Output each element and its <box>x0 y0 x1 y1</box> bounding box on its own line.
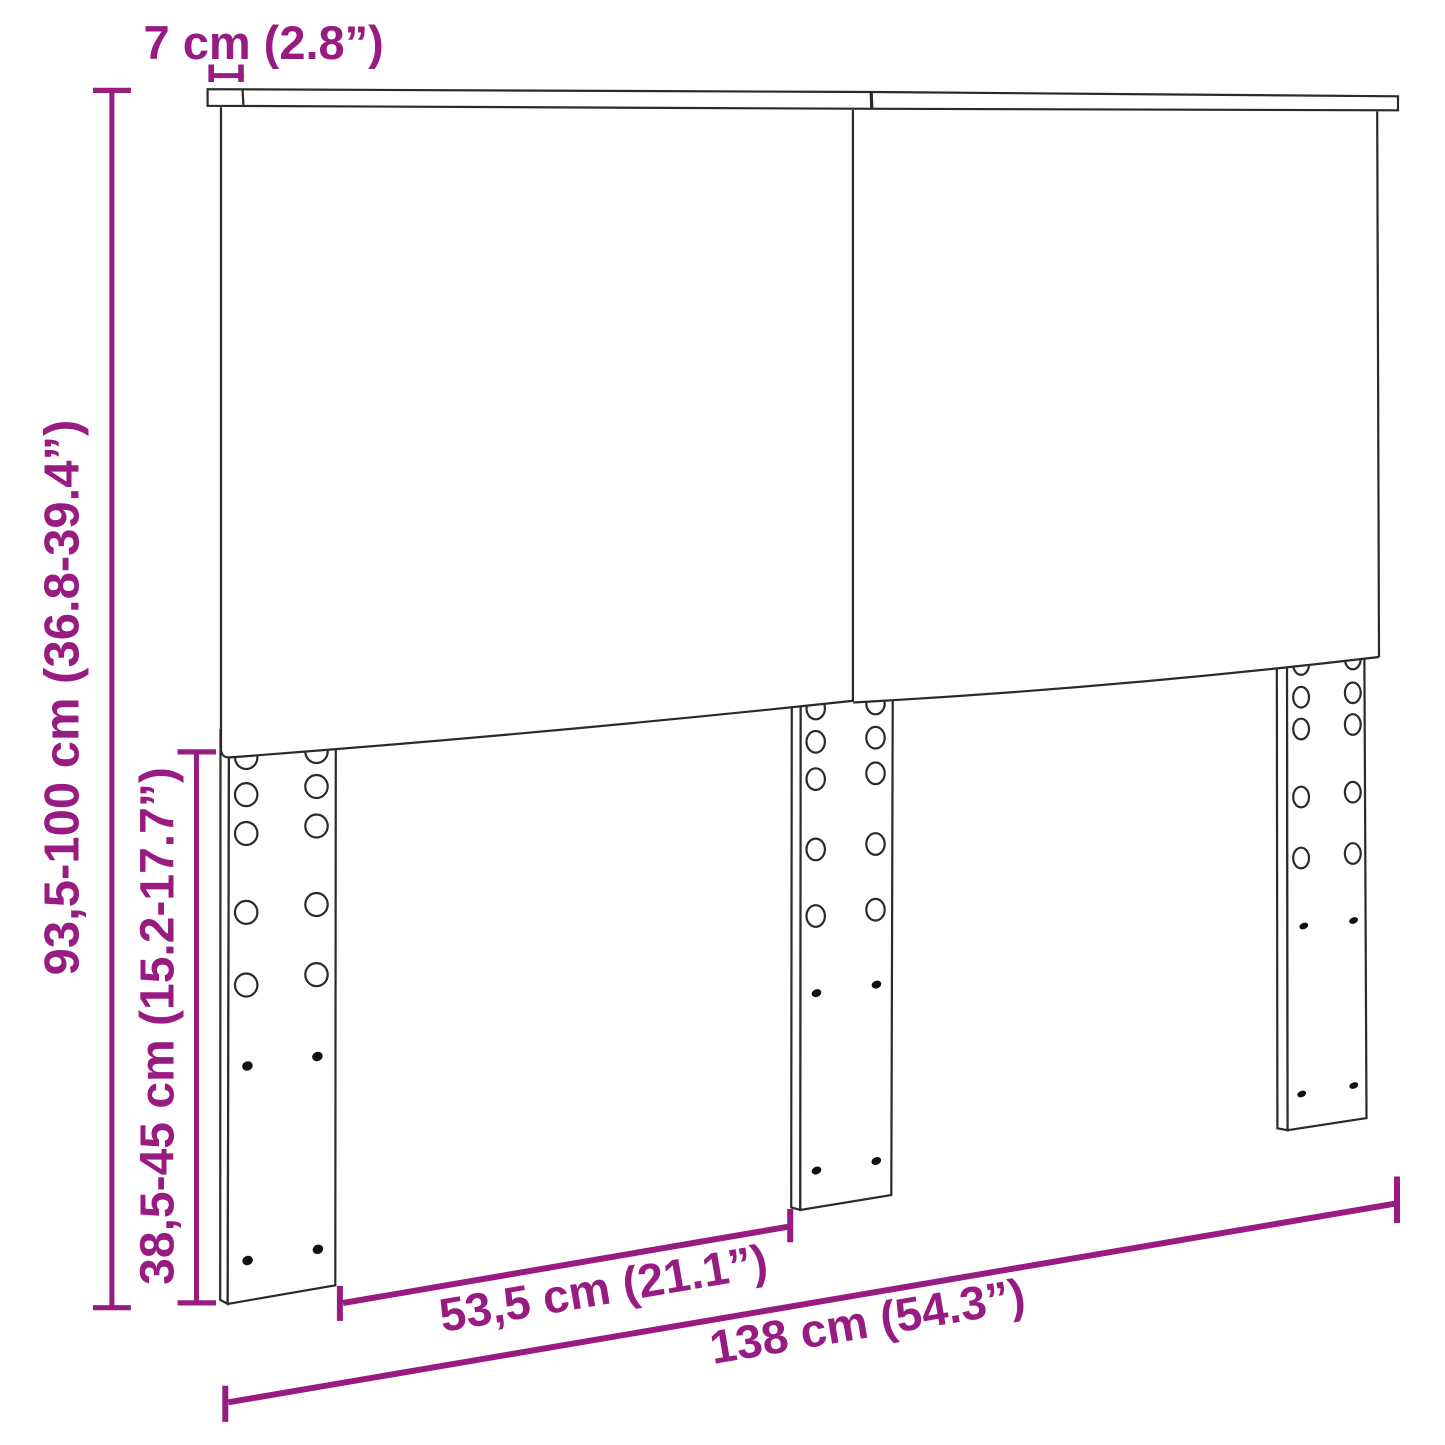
svg-text:7 cm (2.8”): 7 cm (2.8”) <box>144 16 384 69</box>
svg-text:38,5-45 cm (15.2-17.7”): 38,5-45 cm (15.2-17.7”) <box>132 767 185 1285</box>
svg-text:93,5-100 cm (36.8-39.4”): 93,5-100 cm (36.8-39.4”) <box>36 420 90 976</box>
